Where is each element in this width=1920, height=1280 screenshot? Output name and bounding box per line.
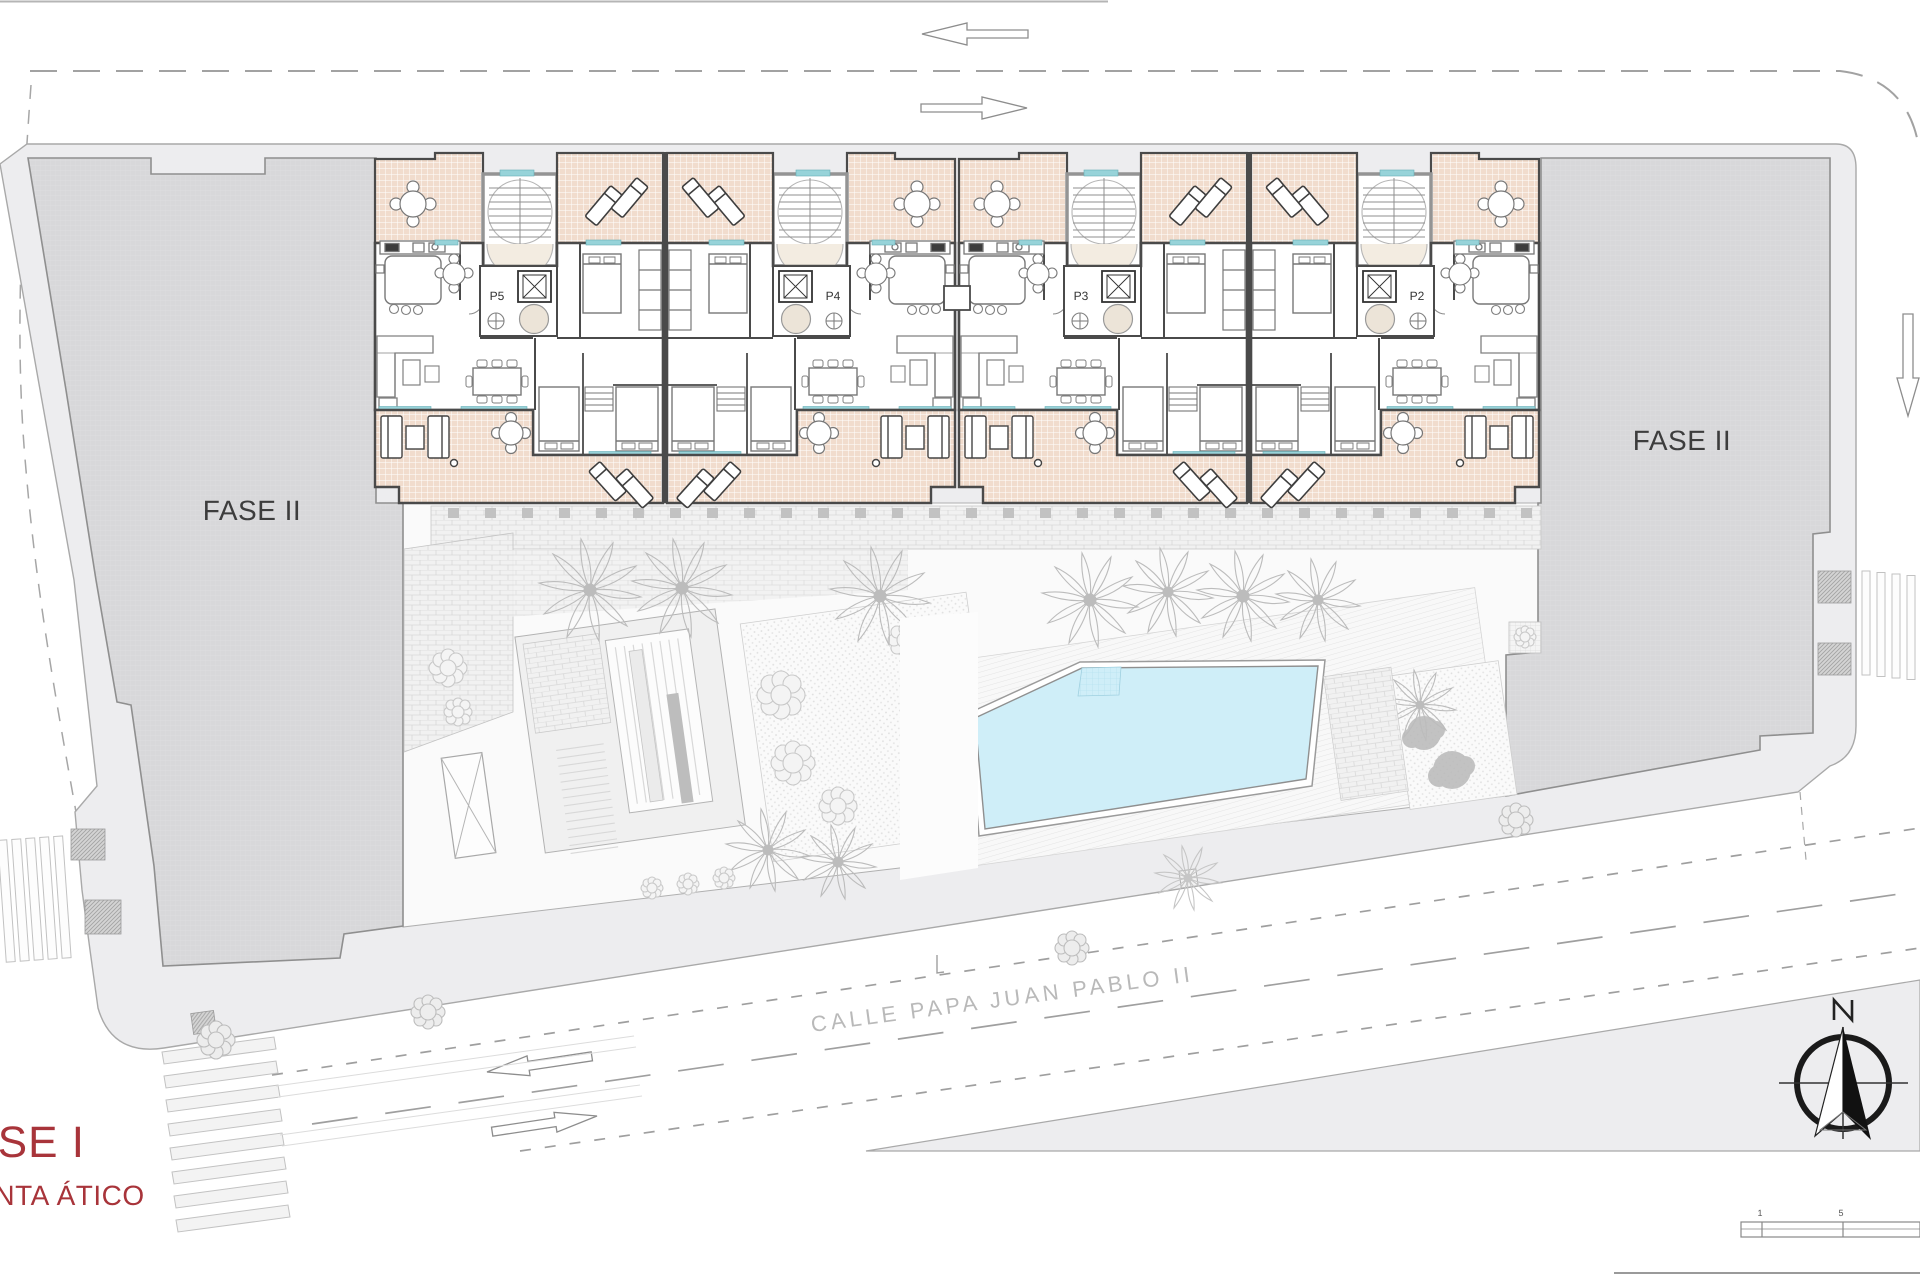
svg-text:1: 1	[1757, 1208, 1762, 1218]
svg-text:FASE I: FASE I	[0, 1118, 85, 1167]
svg-text:P2: P2	[1410, 289, 1425, 303]
svg-text:5: 5	[1838, 1208, 1843, 1218]
svg-text:P4: P4	[826, 289, 841, 303]
svg-text:FASE II: FASE II	[1633, 425, 1731, 456]
svg-text:P3: P3	[1074, 289, 1089, 303]
svg-text:P5: P5	[490, 289, 505, 303]
svg-text:FASE II: FASE II	[203, 495, 301, 526]
svg-text:PLANTA ÁTICO: PLANTA ÁTICO	[0, 1180, 145, 1211]
